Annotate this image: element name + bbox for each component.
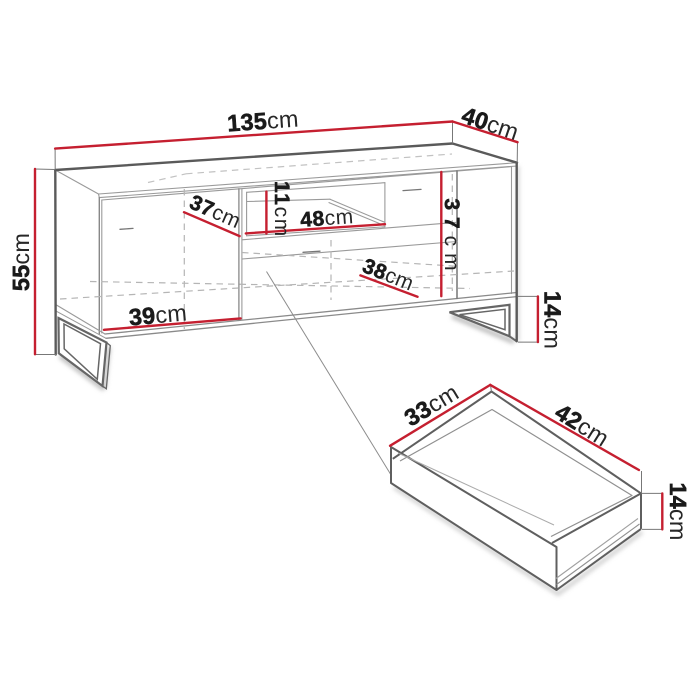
svg-text:33cm: 33cm	[400, 379, 463, 431]
svg-text:48cm: 48cm	[300, 205, 355, 232]
svg-text:38cm: 38cm	[359, 254, 417, 295]
svg-text:11cm: 11cm	[270, 181, 293, 238]
svg-text:135cm: 135cm	[226, 106, 299, 137]
svg-text:37cm: 37cm	[440, 198, 463, 277]
svg-text:42cm: 42cm	[550, 399, 613, 452]
svg-text:14cm: 14cm	[665, 482, 691, 540]
svg-text:14cm: 14cm	[540, 291, 566, 349]
svg-text:39cm: 39cm	[128, 300, 188, 331]
svg-text:55cm: 55cm	[8, 233, 34, 291]
svg-text:40cm: 40cm	[459, 102, 523, 145]
